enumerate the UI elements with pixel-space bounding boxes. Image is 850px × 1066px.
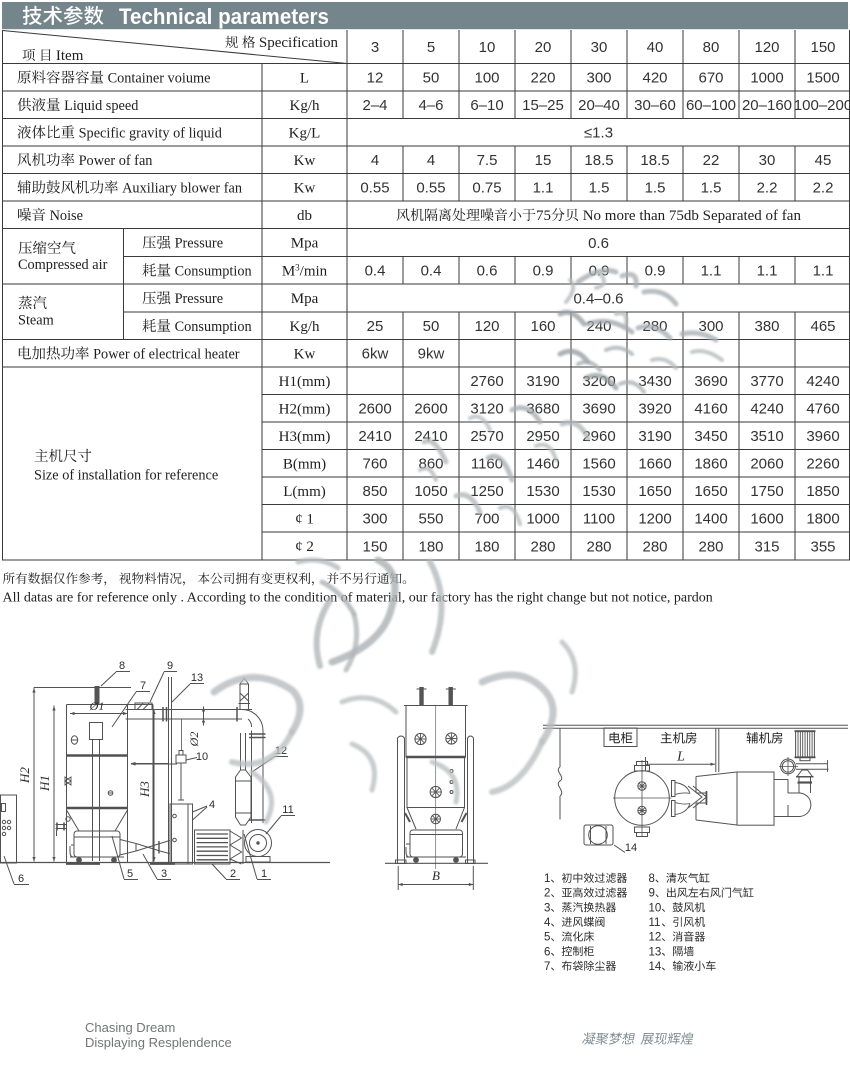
svg-text:2–4: 2–4	[362, 97, 387, 114]
svg-text:Steam: Steam	[18, 313, 54, 329]
svg-text:75: 75	[536, 208, 551, 224]
svg-text:355: 355	[810, 538, 835, 555]
svg-text:1: 1	[261, 868, 267, 880]
svg-text:M3/min: M3/min	[282, 262, 328, 279]
svg-text:H1(mm): H1(mm)	[279, 374, 331, 390]
svg-text:12: 12	[367, 70, 384, 87]
svg-text:3920: 3920	[638, 401, 671, 418]
svg-text:Mpa: Mpa	[291, 236, 319, 252]
svg-text:2.2: 2.2	[757, 180, 778, 197]
svg-text:Kg/L: Kg/L	[289, 125, 321, 141]
svg-text:1530: 1530	[526, 483, 559, 500]
svg-text:Consumption: Consumption	[175, 319, 252, 335]
svg-text:300: 300	[586, 70, 611, 87]
svg-text:18.5: 18.5	[584, 152, 613, 169]
svg-text:1650: 1650	[694, 483, 727, 500]
svg-text:Item: Item	[56, 48, 84, 64]
svg-text:Kg/h: Kg/h	[290, 319, 321, 335]
svg-text:B(mm): B(mm)	[283, 456, 326, 472]
svg-text:0.9: 0.9	[533, 263, 554, 280]
svg-text:1650: 1650	[638, 483, 671, 500]
svg-text:1800: 1800	[806, 511, 839, 528]
svg-text:Noise: Noise	[50, 208, 83, 224]
svg-text:3: 3	[161, 868, 167, 880]
svg-text:0.9: 0.9	[645, 263, 666, 280]
svg-text:L: L	[300, 70, 309, 86]
svg-text:40: 40	[647, 39, 664, 56]
svg-text:¢ 2: ¢ 2	[295, 539, 314, 555]
svg-text:Compressed air: Compressed air	[18, 257, 108, 273]
svg-text:6: 6	[544, 946, 550, 958]
svg-text:20: 20	[535, 39, 552, 56]
svg-text:4: 4	[209, 799, 215, 811]
svg-text:H1: H1	[37, 775, 52, 792]
svg-text:760: 760	[362, 456, 387, 473]
svg-text:4–6: 4–6	[418, 97, 443, 114]
svg-text:6–10: 6–10	[470, 97, 503, 114]
svg-text:4: 4	[427, 152, 435, 169]
svg-text:Power of fan: Power of fan	[79, 153, 153, 169]
svg-text:2: 2	[544, 888, 550, 900]
svg-text:10: 10	[196, 751, 208, 763]
svg-text:Displaying Resplendence: Displaying Resplendence	[85, 1035, 232, 1050]
svg-text:Kw: Kw	[294, 153, 316, 169]
svg-text:13: 13	[191, 672, 203, 684]
svg-text:0.4: 0.4	[365, 263, 386, 280]
svg-text:9kw: 9kw	[418, 346, 445, 363]
svg-text:1.5: 1.5	[645, 180, 666, 197]
svg-text:0.6: 0.6	[588, 235, 609, 252]
svg-text:1: 1	[544, 873, 550, 885]
svg-text:20–40: 20–40	[578, 97, 620, 114]
svg-text:2760: 2760	[470, 373, 503, 390]
svg-text:120: 120	[754, 39, 779, 56]
svg-text:1.5: 1.5	[589, 180, 610, 197]
svg-text:8: 8	[119, 660, 125, 672]
svg-text:≤1.3: ≤1.3	[584, 125, 613, 142]
svg-text:1750: 1750	[750, 483, 783, 500]
svg-text:L(mm): L(mm)	[283, 484, 326, 500]
svg-text:2600: 2600	[358, 401, 391, 418]
svg-text:300: 300	[362, 511, 387, 528]
svg-text:0.6: 0.6	[477, 263, 498, 280]
svg-text:H3: H3	[137, 781, 152, 798]
svg-text:5: 5	[427, 39, 435, 56]
svg-text:Size of installation for refer: Size of installation for reference	[34, 468, 218, 484]
svg-text:2.2: 2.2	[813, 180, 834, 197]
svg-text:1660: 1660	[638, 456, 671, 473]
svg-text:Ø2: Ø2	[187, 732, 201, 748]
svg-text:No more than 75db Separated of: No more than 75db Separated of fan	[583, 208, 802, 224]
svg-text:2410: 2410	[358, 428, 391, 445]
svg-text:Auxiliary blower fan: Auxiliary blower fan	[122, 180, 242, 196]
svg-text:3430: 3430	[638, 373, 671, 390]
svg-text:8: 8	[649, 873, 655, 885]
svg-text:3690: 3690	[694, 373, 727, 390]
svg-text:9: 9	[167, 660, 173, 672]
svg-text:1600: 1600	[750, 511, 783, 528]
svg-text:Kw: Kw	[294, 180, 316, 196]
svg-text:2570: 2570	[470, 428, 503, 445]
svg-text:220: 220	[530, 70, 555, 87]
svg-text:3960: 3960	[806, 428, 839, 445]
svg-text:0.75: 0.75	[472, 180, 501, 197]
svg-text:30–60: 30–60	[634, 97, 676, 114]
svg-text:2950: 2950	[526, 428, 559, 445]
svg-text:2600: 2600	[414, 401, 447, 418]
svg-text:30: 30	[591, 39, 608, 56]
svg-text:Liquid speed: Liquid speed	[64, 98, 138, 114]
svg-text:Specification: Specification	[259, 35, 339, 51]
svg-text:280: 280	[698, 538, 723, 555]
svg-text:Consumption: Consumption	[175, 263, 252, 279]
svg-text:2: 2	[230, 868, 236, 880]
svg-text:L: L	[676, 750, 685, 765]
svg-text:1850: 1850	[806, 483, 839, 500]
svg-text:H2: H2	[17, 767, 32, 784]
svg-text:4: 4	[544, 917, 551, 929]
svg-text:9: 9	[649, 888, 655, 900]
svg-text:280: 280	[530, 538, 555, 555]
svg-text:1560: 1560	[582, 456, 615, 473]
svg-text:3190: 3190	[526, 373, 559, 390]
svg-text:1050: 1050	[414, 483, 447, 500]
svg-text:4760: 4760	[806, 401, 839, 418]
svg-text:850: 850	[362, 483, 387, 500]
svg-text:315: 315	[754, 538, 779, 555]
svg-text:7.5: 7.5	[477, 152, 498, 169]
svg-text:1530: 1530	[582, 483, 615, 500]
svg-text:2060: 2060	[750, 456, 783, 473]
svg-text:670: 670	[698, 70, 723, 87]
svg-text:150: 150	[810, 39, 835, 56]
svg-text:H2(mm): H2(mm)	[279, 401, 331, 417]
svg-text:10: 10	[479, 39, 496, 56]
svg-text:db: db	[297, 208, 312, 224]
svg-text:13: 13	[649, 946, 662, 958]
svg-text:7: 7	[140, 680, 146, 692]
svg-text:4: 4	[371, 152, 379, 169]
svg-text:All datas are for reference on: All datas are for reference only . Accor…	[3, 591, 713, 606]
svg-text:4240: 4240	[750, 401, 783, 418]
svg-text:4240: 4240	[806, 373, 839, 390]
svg-text:Chasing Dream: Chasing Dream	[85, 1020, 175, 1035]
svg-text:0.4–0.6: 0.4–0.6	[573, 290, 623, 307]
svg-text:Power of electrical heater: Power of electrical heater	[93, 346, 240, 362]
svg-text:6: 6	[18, 873, 24, 885]
svg-text:Kg/h: Kg/h	[290, 98, 321, 114]
svg-text:1100: 1100	[583, 511, 615, 528]
svg-text:100–200: 100–200	[794, 97, 850, 114]
svg-text:7: 7	[544, 961, 550, 973]
svg-text:50: 50	[423, 318, 440, 335]
svg-text:H3(mm): H3(mm)	[279, 429, 331, 445]
svg-text:45: 45	[815, 152, 832, 169]
svg-text:80: 80	[703, 39, 720, 56]
svg-text:1250: 1250	[470, 483, 503, 500]
svg-text:Mpa: Mpa	[291, 291, 319, 307]
svg-text:1.1: 1.1	[813, 263, 834, 280]
svg-text:1200: 1200	[638, 511, 671, 528]
svg-text:¢ 1: ¢ 1	[295, 511, 314, 527]
svg-text:160: 160	[530, 318, 555, 335]
svg-text:120: 120	[474, 318, 499, 335]
svg-text:0.55: 0.55	[360, 180, 389, 197]
svg-text:15–25: 15–25	[522, 97, 564, 114]
svg-text:11: 11	[282, 804, 293, 816]
svg-text:1000: 1000	[750, 70, 783, 87]
svg-text:5: 5	[544, 932, 550, 944]
svg-text:465: 465	[810, 318, 835, 335]
svg-text:50: 50	[423, 70, 440, 87]
svg-text:280: 280	[642, 538, 667, 555]
svg-text:5: 5	[127, 868, 133, 880]
svg-text:420: 420	[642, 70, 667, 87]
svg-text:150: 150	[362, 538, 387, 555]
svg-text:Specific gravity of liquid: Specific gravity of liquid	[79, 125, 222, 141]
svg-text:18.5: 18.5	[640, 152, 669, 169]
svg-text:380: 380	[754, 318, 779, 335]
svg-text:22: 22	[703, 152, 720, 169]
svg-text:3450: 3450	[694, 428, 727, 445]
svg-text:Pressure: Pressure	[175, 236, 223, 252]
svg-text:6kw: 6kw	[362, 346, 389, 363]
svg-text:B: B	[432, 868, 440, 883]
svg-text:1.1: 1.1	[701, 263, 722, 280]
svg-text:Pressure: Pressure	[175, 291, 223, 307]
svg-text:3: 3	[371, 39, 379, 56]
svg-text:550: 550	[418, 511, 443, 528]
svg-text:11: 11	[649, 917, 661, 929]
svg-text:180: 180	[474, 538, 499, 555]
svg-text:1400: 1400	[694, 511, 727, 528]
svg-text:100: 100	[474, 70, 499, 87]
svg-text:1.1: 1.1	[757, 263, 778, 280]
svg-text:Container voiume: Container voiume	[108, 70, 211, 86]
svg-text:14: 14	[625, 842, 637, 854]
svg-text:15: 15	[535, 152, 552, 169]
svg-text:30: 30	[759, 152, 776, 169]
svg-text:3: 3	[544, 902, 550, 914]
svg-text:280: 280	[586, 538, 611, 555]
svg-text:1000: 1000	[526, 511, 559, 528]
svg-text:14: 14	[649, 961, 662, 973]
svg-text:Technical parameters: Technical parameters	[119, 4, 329, 29]
svg-text:3770: 3770	[750, 373, 783, 390]
svg-text:60–100: 60–100	[686, 97, 736, 114]
svg-text:1860: 1860	[694, 456, 727, 473]
svg-text:1500: 1500	[806, 70, 839, 87]
svg-text:4160: 4160	[694, 401, 727, 418]
svg-text:2260: 2260	[806, 456, 839, 473]
svg-text:0.55: 0.55	[416, 180, 445, 197]
svg-text:3510: 3510	[750, 428, 783, 445]
svg-text:12: 12	[649, 932, 662, 944]
svg-text:20–160: 20–160	[742, 97, 792, 114]
svg-text:1.1: 1.1	[533, 180, 554, 197]
svg-text:3190: 3190	[638, 428, 671, 445]
svg-text:0.4: 0.4	[421, 263, 442, 280]
svg-text:Ø1: Ø1	[89, 699, 105, 713]
svg-text:10: 10	[649, 902, 662, 914]
svg-text:1.5: 1.5	[701, 180, 722, 197]
svg-text:3690: 3690	[582, 401, 615, 418]
svg-text:25: 25	[367, 318, 384, 335]
svg-text:Kw: Kw	[294, 346, 316, 362]
svg-text:180: 180	[418, 538, 443, 555]
